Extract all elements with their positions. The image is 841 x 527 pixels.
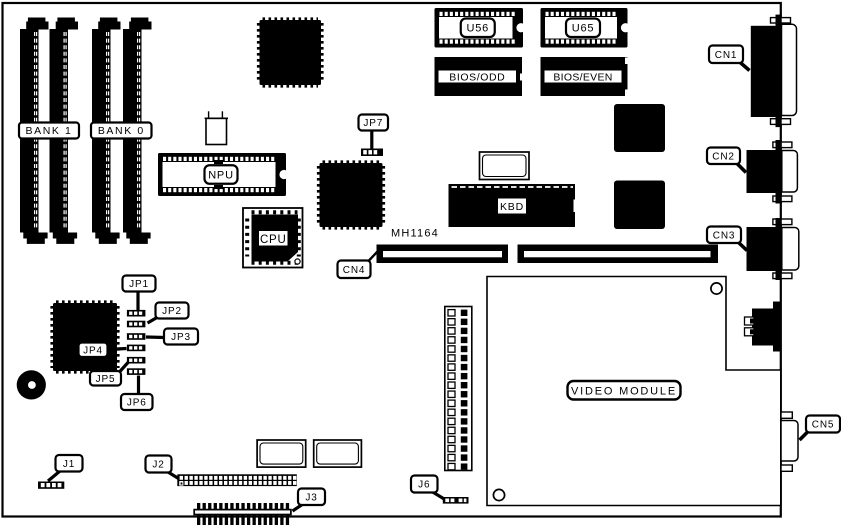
svg-text:BANK 0: BANK 0: [98, 125, 145, 137]
svg-text:JP7: JP7: [363, 118, 383, 129]
svg-text:J1: J1: [63, 459, 75, 470]
svg-text:JP4: JP4: [83, 345, 103, 356]
svg-text:CN1: CN1: [715, 50, 737, 61]
svg-text:J6: J6: [418, 480, 430, 491]
svg-text:MH1164: MH1164: [391, 228, 439, 240]
svg-text:CN2: CN2: [712, 151, 734, 162]
svg-text:BANK 1: BANK 1: [26, 125, 73, 137]
svg-text:CN3: CN3: [713, 230, 735, 241]
svg-text:BIOS/EVEN: BIOS/EVEN: [553, 71, 612, 83]
svg-text:JP5: JP5: [96, 374, 116, 385]
svg-text:VIDEO MODULE: VIDEO MODULE: [571, 385, 677, 397]
svg-text:U56: U56: [466, 23, 489, 35]
svg-text:U65: U65: [572, 23, 595, 35]
svg-text:CPU: CPU: [260, 234, 287, 246]
svg-text:J2: J2: [152, 460, 164, 471]
svg-text:JP3: JP3: [171, 332, 191, 343]
svg-text:NPU: NPU: [208, 169, 234, 181]
svg-text:CN5: CN5: [812, 420, 834, 431]
svg-text:JP2: JP2: [162, 306, 182, 317]
svg-text:J3: J3: [305, 492, 317, 503]
svg-text:CN4: CN4: [343, 265, 365, 276]
svg-text:JP1: JP1: [129, 279, 149, 290]
svg-text:JP6: JP6: [127, 398, 147, 409]
svg-text:BIOS/ODD: BIOS/ODD: [449, 71, 505, 83]
svg-text:KBD: KBD: [500, 201, 524, 213]
